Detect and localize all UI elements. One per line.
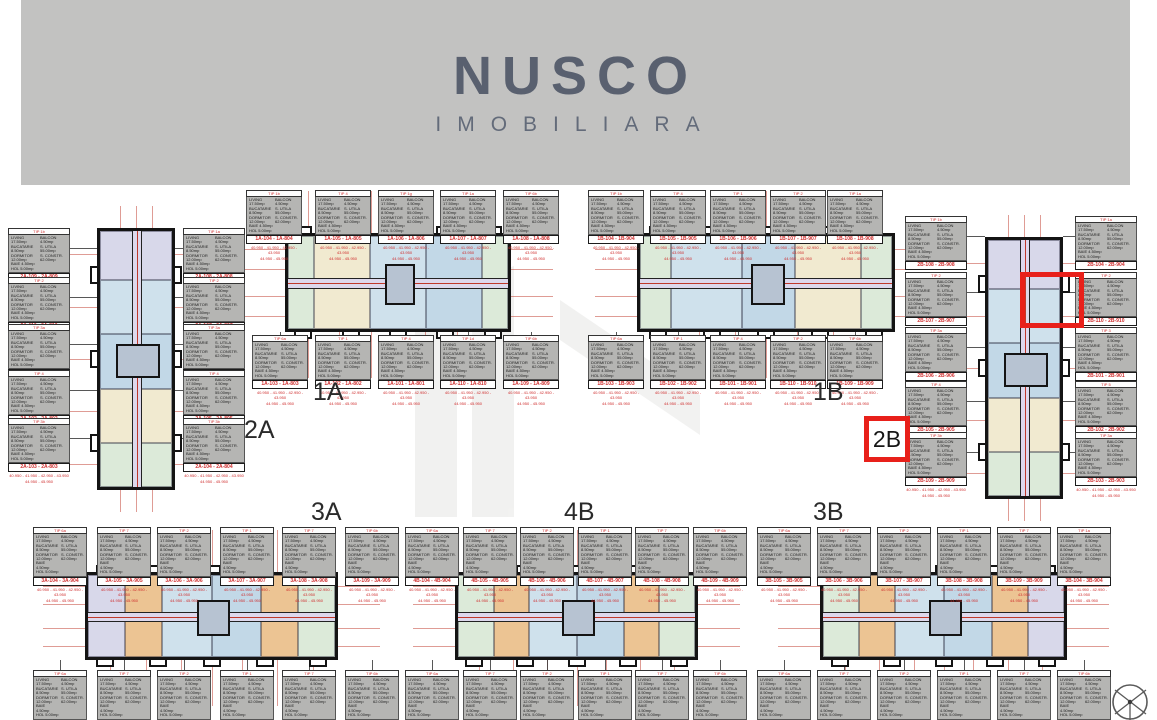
- unit-range-label[interactable]: 1B-102 - 1B-902: [650, 380, 706, 389]
- card-details: LIVING 17.50mpBUCATARIE 8.50mpDORMITOR 1…: [578, 677, 632, 720]
- card-details-left: LIVING 17.50mpBUCATARIE 8.50mpDORMITOR 1…: [523, 678, 546, 718]
- card-details: LIVING 17.50mpBUCATARIE 8.50mpDORMITOR 1…: [693, 534, 747, 577]
- unit-callout-card: TIP 1dLIVING 17.50mpBUCATARIE 8.50mpDORM…: [440, 335, 496, 406]
- balcony-bump: [1061, 443, 1070, 461]
- stair-core: [751, 264, 785, 305]
- unit-range-label[interactable]: 1B-107 - 1B-907: [770, 235, 826, 244]
- unit-range-label[interactable]: 4B-105 - 4B-905: [463, 577, 517, 586]
- card-details-left: LIVING 17.50mpBUCATARIE 8.50mpDORMITOR 1…: [249, 198, 273, 233]
- building-title-3a: 3A: [311, 498, 342, 527]
- card-details-left: LIVING 17.50mpBUCATARIE 8.50mpDORMITOR 1…: [1000, 678, 1023, 718]
- tip-label: TIP 7: [635, 670, 689, 677]
- connector-line: [1063, 401, 1075, 402]
- card-details-left: LIVING 17.50mpBUCATARIE 8.50mpDORMITOR 1…: [223, 678, 246, 718]
- unit-range-label[interactable]: 1A-101 - 1A-801: [378, 380, 434, 389]
- tip-label: TIP 1: [578, 670, 632, 677]
- card-details-right: BALCON 4.50mpS. UTILA 55.00mpS. CONSTR. …: [721, 535, 744, 575]
- card-details: LIVING 17.50mpBUCATARIE 8.50mpDORMITOR 1…: [440, 197, 496, 235]
- balcony-bump: [978, 443, 987, 461]
- card-details-right: BALCON 4.50mpS. UTILA 55.00mpS. CONSTR. …: [785, 535, 808, 575]
- card-prices: 44.950 - 45.950: [650, 256, 706, 261]
- connector-line: [70, 390, 97, 391]
- card-prices: 40.950 - 41.950 - 42.950 - 43.950: [440, 390, 496, 400]
- card-details-right: BALCON 4.50mpS. UTILA 55.00mpS. CONSTR. …: [40, 426, 67, 461]
- unit-range-label[interactable]: 1A-108 - 1A-808: [503, 235, 559, 244]
- unit-range-label[interactable]: 1A-107 - 1A-807: [440, 235, 496, 244]
- card-details: LIVING 17.50mpBUCATARIE 8.50mpDORMITOR 1…: [503, 342, 559, 380]
- card-prices: 40.950 - 41.950 - 42.950 - 43.950: [588, 245, 644, 255]
- unit-callout-card: TIP 1LIVING 17.50mpBUCATARIE 8.50mpDORMI…: [220, 527, 274, 603]
- card-details-right: BALCON 4.50mpS. UTILA 55.00mpS. CONSTR. …: [532, 198, 556, 233]
- card-details-right: BALCON 4.50mpS. UTILA 55.00mpS. CONSTR. …: [799, 198, 823, 233]
- connector-line: [70, 248, 97, 249]
- card-details-right: BALCON 4.50mpS. UTILA 55.00mpS. CONSTR. …: [215, 236, 242, 271]
- connector-line: [70, 297, 97, 298]
- card-details-left: LIVING 17.50mpBUCATARIE 8.50mpDORMITOR 1…: [1078, 335, 1105, 370]
- card-details: LIVING 17.50mpBUCATARIE 8.50mpDORMITOR 1…: [378, 342, 434, 380]
- unit-range-label[interactable]: 4B-108 - 4B-908: [635, 577, 689, 586]
- tip-label: TIP 4: [650, 190, 706, 197]
- card-details: LIVING 17.50mpBUCATARIE 8.50mpDORMITOR 1…: [1075, 334, 1137, 372]
- card-details-right: BALCON 4.50mpS. UTILA 55.00mpS. CONSTR. …: [248, 535, 271, 575]
- card-details-left: LIVING 17.50mpBUCATARIE 8.50mpDORMITOR 1…: [696, 535, 719, 575]
- card-details-left: LIVING 17.50mpBUCATARIE 8.50mpDORMITOR 1…: [36, 678, 59, 718]
- card-prices: 44.950 - 45.950: [1075, 493, 1137, 498]
- card-details-left: LIVING 17.50mpBUCATARIE 8.50mpDORMITOR 1…: [160, 678, 183, 718]
- card-details-left: LIVING 17.50mpBUCATARIE 8.50mpDORMITOR 1…: [348, 535, 371, 575]
- card-details: LIVING 17.50mpBUCATARIE 8.50mpDORMITOR 1…: [345, 677, 399, 720]
- tip-label: TIP 6b: [827, 335, 883, 342]
- card-details-left: LIVING 17.50mpBUCATARIE 8.50mpDORMITOR 1…: [830, 198, 854, 233]
- card-prices: 44.950 - 45.950: [183, 479, 245, 484]
- card-details-right: BALCON 4.50mpS. UTILA 55.00mpS. CONSTR. …: [1107, 280, 1134, 315]
- card-details-left: LIVING 17.50mpBUCATARIE 8.50mpDORMITOR 1…: [36, 535, 59, 575]
- card-details-right: BALCON 4.50mpS. UTILA 55.00mpS. CONSTR. …: [185, 535, 208, 575]
- unit-callout-card: TIP 6aLIVING 17.50mpBUCATARIE 8.50mpDORM…: [757, 527, 811, 603]
- balcony-bump: [986, 658, 1004, 667]
- card-details: LIVING 17.50mpBUCATARIE 8.50mpDORMITOR 1…: [157, 534, 211, 577]
- unit-range-label[interactable]: 3A-106 - 3A-906: [157, 577, 211, 586]
- connector-line: [70, 344, 97, 345]
- tip-label: TIP 7: [817, 670, 871, 677]
- card-details-left: LIVING 17.50mpBUCATARIE 8.50mpDORMITOR 1…: [11, 426, 38, 461]
- card-details-right: BALCON 4.50mpS. UTILA 55.00mpS. CONSTR. …: [491, 535, 514, 575]
- card-details-left: LIVING 17.50mpBUCATARIE 8.50mpDORMITOR 1…: [11, 332, 38, 367]
- card-details: LIVING 17.50mpBUCATARIE 8.50mpDORMITOR 1…: [520, 534, 574, 577]
- card-prices: 40.950 - 41.950 - 42.950 - 43.950: [693, 587, 747, 597]
- unit-range-label[interactable]: 1A-110 - 1A-810: [440, 380, 496, 389]
- tip-label: TIP 2: [877, 670, 931, 677]
- tip-label: TIP 1: [937, 527, 991, 534]
- card-details: LIVING 17.50mpBUCATARIE 8.50mpDORMITOR 1…: [877, 534, 931, 577]
- card-details-right: BALCON 4.50mpS. UTILA 55.00mpS. CONSTR. …: [606, 678, 629, 718]
- card-prices: 40.950 - 41.950 - 42.950 - 43.950: [770, 245, 826, 255]
- card-details-right: BALCON 4.50mpS. UTILA 55.00mpS. CONSTR. …: [548, 535, 571, 575]
- card-details-right: BALCON 4.50mpS. UTILA 55.00mpS. CONSTR. …: [617, 343, 641, 378]
- card-details-right: BALCON 4.50mpS. UTILA 55.00mpS. CONSTR. …: [937, 280, 964, 315]
- balcony-bump: [96, 658, 114, 667]
- tip-label: TIP 6a: [405, 527, 459, 534]
- card-details-right: BALCON 4.50mpS. UTILA 55.00mpS. CONSTR. …: [125, 535, 148, 575]
- card-prices: 44.950 - 45.950: [220, 598, 274, 603]
- unit-range-label[interactable]: 2B-110 - 2B-910: [1075, 317, 1137, 326]
- card-details: LIVING 17.50mpBUCATARIE 8.50mpDORMITOR 1…: [282, 534, 336, 577]
- unit-range-label[interactable]: 4B-104 - 4B-904: [405, 577, 459, 586]
- card-details-left: LIVING 17.50mpBUCATARIE 8.50mpDORMITOR 1…: [591, 198, 615, 233]
- unit-callout-card: TIP 1gLIVING 17.50mpBUCATARIE 8.50mpDORM…: [378, 190, 434, 261]
- card-details-left: LIVING 17.50mpBUCATARIE 8.50mpDORMITOR 1…: [506, 343, 530, 378]
- unit-range-label[interactable]: 2B-106 - 2B-906: [905, 372, 967, 381]
- unit-callout-card: TIP 6bLIVING 17.50mpBUCATARIE 8.50mpDORM…: [693, 670, 747, 720]
- unit-range-label[interactable]: 1A-103 - 1A-803: [252, 380, 308, 389]
- card-details: LIVING 17.50mpBUCATARIE 8.50mpDORMITOR 1…: [905, 223, 967, 261]
- connector-line: [175, 390, 183, 391]
- card-prices: 40.950 - 41.950 - 42.950 - 43.950: [378, 390, 434, 400]
- connector-line: [175, 248, 183, 249]
- card-details-right: BALCON 4.50mpS. UTILA 55.00mpS. CONSTR. …: [61, 678, 84, 718]
- card-details: LIVING 17.50mpBUCATARIE 8.50mpDORMITOR 1…: [183, 235, 245, 273]
- tip-label: TIP 6a: [405, 670, 459, 677]
- card-details-left: LIVING 17.50mpBUCATARIE 8.50mpDORMITOR 1…: [285, 535, 308, 575]
- card-details-right: BALCON 4.50mpS. UTILA 55.00mpS. CONSTR. …: [1107, 440, 1134, 475]
- connector-line: [175, 344, 183, 345]
- card-details: LIVING 17.50mpBUCATARIE 8.50mpDORMITOR 1…: [33, 534, 87, 577]
- balcony-bump: [1038, 658, 1056, 667]
- card-details-right: BALCON 4.50mpS. UTILA 55.00mpS. CONSTR. …: [275, 198, 299, 233]
- card-details: LIVING 17.50mpBUCATARIE 8.50mpDORMITOR 1…: [997, 534, 1051, 577]
- card-prices: 44.950 - 45.950: [157, 598, 211, 603]
- unit-callout-card: TIP 3bLIVING 17.50mpBUCATARIE 8.50mpDORM…: [8, 418, 70, 484]
- stair-core: [929, 600, 962, 637]
- card-details: LIVING 17.50mpBUCATARIE 8.50mpDORMITOR 1…: [183, 377, 245, 415]
- card-details-right: BALCON 4.50mpS. UTILA 55.00mpS. CONSTR. …: [721, 678, 744, 718]
- card-prices: 44.950 - 45.950: [827, 256, 883, 261]
- card-details-right: BALCON 4.50mpS. UTILA 55.00mpS. CONSTR. …: [215, 426, 242, 461]
- card-prices: 44.950 - 45.950: [8, 479, 70, 484]
- unit-callout-card: TIP 2LIVING 17.50mpBUCATARIE 8.50mpDORMI…: [770, 190, 826, 261]
- card-details-left: LIVING 17.50mpBUCATARIE 8.50mpDORMITOR 1…: [318, 198, 342, 233]
- card-details-right: BALCON 4.50mpS. UTILA 55.00mpS. CONSTR. …: [845, 678, 868, 718]
- card-details: LIVING 17.50mpBUCATARIE 8.50mpDORMITOR 1…: [220, 534, 274, 577]
- card-details: LIVING 17.50mpBUCATARIE 8.50mpDORMITOR 1…: [315, 197, 371, 235]
- card-details-right: BALCON 4.50mpS. UTILA 55.00mpS. CONSTR. …: [469, 198, 493, 233]
- unit-callout-card: TIP 6aLIVING 17.50mpBUCATARIE 8.50mpDORM…: [405, 527, 459, 603]
- balcony-bump: [309, 658, 327, 667]
- unit-callout-card: TIP 2LIVING 17.50mpBUCATARIE 8.50mpDORMI…: [877, 670, 931, 720]
- card-details-right: BALCON 4.50mpS. UTILA 55.00mpS. CONSTR. …: [965, 535, 988, 575]
- card-prices: 44.950 - 45.950: [503, 401, 559, 406]
- connector-line: [547, 660, 548, 670]
- card-details: LIVING 17.50mpBUCATARIE 8.50mpDORMITOR 1…: [578, 534, 632, 577]
- card-details-left: LIVING 17.50mpBUCATARIE 8.50mpDORMITOR 1…: [880, 678, 903, 718]
- unit-range-label[interactable]: 2B-109 - 2B-909: [905, 477, 967, 486]
- card-details-left: LIVING 17.50mpBUCATARIE 8.50mpDORMITOR 1…: [1060, 678, 1083, 718]
- unit-range-label[interactable]: 3A-109 - 3A-909: [345, 577, 399, 586]
- unit-callout-card: TIP 6aLIVING 17.50mpBUCATARIE 8.50mpDORM…: [33, 670, 87, 720]
- card-details-left: LIVING 17.50mpBUCATARIE 8.50mpDORMITOR 1…: [713, 343, 737, 378]
- card-prices: 44.950 - 45.950: [693, 598, 747, 603]
- card-details-right: BALCON 4.50mpS. UTILA 55.00mpS. CONSTR. …: [856, 343, 880, 378]
- card-details-right: BALCON 4.50mpS. UTILA 55.00mpS. CONSTR. …: [491, 678, 514, 718]
- card-details-left: LIVING 17.50mpBUCATARIE 8.50mpDORMITOR 1…: [506, 198, 530, 233]
- unit-callout-card: TIP 7LIVING 17.50mpBUCATARIE 8.50mpDORMI…: [817, 527, 871, 603]
- tip-label: TIP 3a: [1075, 432, 1137, 439]
- unit-callout-card: TIP 1bLIVING 17.50mpBUCATARIE 8.50mpDORM…: [588, 190, 644, 261]
- unit-callout-card: TIP 7LIVING 17.50mpBUCATARIE 8.50mpDORMI…: [997, 670, 1051, 720]
- tip-label: TIP 7: [282, 670, 336, 677]
- card-prices: 40.950 - 41.950 - 42.950 - 43.950: [710, 390, 766, 400]
- card-details: LIVING 17.50mpBUCATARIE 8.50mpDORMITOR 1…: [463, 677, 517, 720]
- unit-callout-card: TIP 7LIVING 17.50mpBUCATARIE 8.50mpDORMI…: [97, 670, 151, 720]
- unit-range-label[interactable]: 4B-107 - 4B-907: [578, 577, 632, 586]
- card-details: LIVING 17.50mpBUCATARIE 8.50mpDORMITOR 1…: [8, 377, 70, 415]
- tip-label: TIP 1g: [378, 190, 434, 197]
- unit-callout-card: TIP 6aLIVING 17.50mpBUCATARIE 8.50mpDORM…: [405, 670, 459, 720]
- card-details: LIVING 17.50mpBUCATARIE 8.50mpDORMITOR 1…: [8, 235, 70, 273]
- card-details-left: LIVING 17.50mpBUCATARIE 8.50mpDORMITOR 1…: [186, 378, 213, 413]
- card-details-right: BALCON 4.50mpS. UTILA 55.00mpS. CONSTR. …: [248, 678, 271, 718]
- unit-range-label[interactable]: 3B-109 - 3B-909: [997, 577, 1051, 586]
- unit-range-label[interactable]: 1A-104 - 1A-804: [246, 235, 302, 244]
- connector-line: [247, 660, 248, 670]
- unit-range-label[interactable]: 4B-106 - 4B-906: [520, 577, 574, 586]
- connector-line: [662, 660, 663, 670]
- card-prices: 44.950 - 45.950: [997, 598, 1051, 603]
- stair-core: [116, 344, 160, 379]
- card-details-right: BALCON 4.50mpS. UTILA 55.00mpS. CONSTR. …: [344, 343, 368, 378]
- building-label-2b[interactable]: 2B: [864, 416, 910, 462]
- card-details-left: LIVING 17.50mpBUCATARIE 8.50mpDORMITOR 1…: [773, 343, 797, 378]
- unit-callout-card: TIP 2LIVING 17.50mpBUCATARIE 8.50mpDORMI…: [877, 527, 931, 603]
- card-details-right: BALCON 4.50mpS. UTILA 55.00mpS. CONSTR. …: [663, 535, 686, 575]
- unit-range-label[interactable]: 1A-109 - 1A-809: [503, 380, 559, 389]
- unit-range-label[interactable]: 1B-106 - 1B-906: [710, 235, 766, 244]
- card-details-right: BALCON 4.50mpS. UTILA 55.00mpS. CONSTR. …: [905, 535, 928, 575]
- card-details-left: LIVING 17.50mpBUCATARIE 8.50mpDORMITOR 1…: [443, 198, 467, 233]
- card-details: LIVING 17.50mpBUCATARIE 8.50mpDORMITOR 1…: [1075, 279, 1137, 317]
- unit-range-label[interactable]: 3B-107 - 3B-907: [877, 577, 931, 586]
- tip-label: TIP 6b: [345, 527, 399, 534]
- unit-range-label[interactable]: 3A-105 - 3A-905: [97, 577, 151, 586]
- tip-label: TIP 7: [97, 527, 151, 534]
- unit-range-label[interactable]: 2B-108 - 2B-908: [905, 261, 967, 270]
- card-details-right: BALCON 4.50mpS. UTILA 55.00mpS. CONSTR. …: [937, 389, 964, 424]
- tip-label: TIP 1a: [183, 228, 245, 235]
- unit-range-label[interactable]: 2B-101 - 2B-901: [1075, 372, 1137, 381]
- card-details-right: BALCON 4.50mpS. UTILA 55.00mpS. CONSTR. …: [532, 343, 556, 378]
- card-details: LIVING 17.50mpBUCATARIE 8.50mpDORMITOR 1…: [315, 342, 371, 380]
- card-details-right: BALCON 4.50mpS. UTILA 55.00mpS. CONSTR. …: [606, 535, 629, 575]
- card-prices: 44.950 - 45.950: [817, 598, 871, 603]
- unit-range-label[interactable]: 1B-101 - 1B-901: [710, 380, 766, 389]
- card-prices: 44.950 - 45.950: [937, 598, 991, 603]
- card-details-left: LIVING 17.50mpBUCATARIE 8.50mpDORMITOR 1…: [581, 678, 604, 718]
- unit-range-label[interactable]: 3A-104 - 3A-904: [33, 577, 87, 586]
- balcony-bump: [1061, 359, 1070, 377]
- unit-range-label[interactable]: 2B-107 - 2B-907: [905, 317, 967, 326]
- tip-label: TIP 7: [282, 527, 336, 534]
- card-details: LIVING 17.50mpBUCATARIE 8.50mpDORMITOR 1…: [1075, 388, 1137, 426]
- unit-range-label[interactable]: 4B-109 - 4B-909: [693, 577, 747, 586]
- unit-range-label[interactable]: 3A-107 - 3A-907: [220, 577, 274, 586]
- unit-range-label[interactable]: 1A-106 - 1A-806: [378, 235, 434, 244]
- tip-label: TIP 6a: [588, 335, 644, 342]
- unit-range-label[interactable]: 3A-108 - 3A-908: [282, 577, 336, 586]
- card-details-right: BALCON 4.50mpS. UTILA 55.00mpS. CONSTR. …: [344, 198, 368, 233]
- unit-range-label[interactable]: 2B-103 - 2B-903: [1075, 477, 1137, 486]
- unit-callout-card: TIP 6bLIVING 17.50mpBUCATARIE 8.50mpDORM…: [693, 527, 747, 603]
- card-prices: 44.950 - 45.950: [877, 598, 931, 603]
- unit-range-label[interactable]: 1B-104 - 1B-904: [588, 235, 644, 244]
- card-prices: 44.950 - 45.950: [905, 493, 967, 498]
- card-details-right: BALCON 4.50mpS. UTILA 55.00mpS. CONSTR. …: [845, 535, 868, 575]
- unit-range-label[interactable]: 3B-106 - 3B-906: [817, 577, 871, 586]
- card-details-left: LIVING 17.50mpBUCATARIE 8.50mpDORMITOR 1…: [11, 378, 38, 413]
- card-details: LIVING 17.50mpBUCATARIE 8.50mpDORMITOR 1…: [770, 197, 826, 235]
- unit-callout-card: TIP 7LIVING 17.50mpBUCATARIE 8.50mpDORMI…: [463, 527, 517, 603]
- card-details-left: LIVING 17.50mpBUCATARIE 8.50mpDORMITOR 1…: [653, 343, 677, 378]
- balcony-bump: [883, 658, 901, 667]
- connector-line: [490, 660, 491, 670]
- card-details-right: BALCON 4.50mpS. UTILA 55.00mpS. CONSTR. …: [40, 236, 67, 271]
- card-details: LIVING 17.50mpBUCATARIE 8.50mpDORMITOR 1…: [8, 331, 70, 369]
- card-details-left: LIVING 17.50mpBUCATARIE 8.50mpDORMITOR 1…: [908, 224, 935, 259]
- balcony-bump: [670, 658, 688, 667]
- tip-label: TIP 1: [220, 670, 274, 677]
- card-details: LIVING 17.50mpBUCATARIE 8.50mpDORMITOR 1…: [97, 534, 151, 577]
- card-details-right: BALCON 4.50mpS. UTILA 55.00mpS. CONSTR. …: [407, 198, 431, 233]
- unit-callout-card: TIP 6aLIVING 17.50mpBUCATARIE 8.50mpDORM…: [588, 335, 644, 406]
- card-details-right: BALCON 4.50mpS. UTILA 55.00mpS. CONSTR. …: [1107, 389, 1134, 424]
- card-prices: 40.950 - 41.950 - 42.950 - 43.950: [405, 587, 459, 597]
- unit-callout-card: TIP 2LIVING 17.50mpBUCATARIE 8.50mpDORMI…: [520, 670, 574, 720]
- unit-range-label[interactable]: 1B-105 - 1B-905: [650, 235, 706, 244]
- card-details: LIVING 17.50mpBUCATARIE 8.50mpDORMITOR 1…: [757, 677, 811, 720]
- balcony-bump: [90, 350, 99, 368]
- card-details-right: BALCON 4.50mpS. UTILA 55.00mpS. CONSTR. …: [937, 335, 964, 370]
- unit-callout-card: TIP 1LIVING 17.50mpBUCATARIE 8.50mpDORMI…: [710, 190, 766, 261]
- card-details-left: LIVING 17.50mpBUCATARIE 8.50mpDORMITOR 1…: [940, 678, 963, 718]
- tip-label: TIP 2: [520, 670, 574, 677]
- building-title-1a: 1A: [313, 378, 344, 407]
- tip-label: TIP 6b: [693, 670, 747, 677]
- card-details-left: LIVING 17.50mpBUCATARIE 8.50mpDORMITOR 1…: [760, 535, 783, 575]
- unit-range-label[interactable]: 3B-108 - 3B-908: [937, 577, 991, 586]
- tip-label: TIP 1a: [1075, 216, 1137, 223]
- card-prices: 40.950 - 41.950 - 42.950 - 43.950: [157, 587, 211, 597]
- card-details-left: LIVING 17.50mpBUCATARIE 8.50mpDORMITOR 1…: [11, 236, 38, 271]
- tip-label: TIP 1: [315, 335, 371, 342]
- card-details: LIVING 17.50mpBUCATARIE 8.50mpDORMITOR 1…: [817, 677, 871, 720]
- card-details-left: LIVING 17.50mpBUCATARIE 8.50mpDORMITOR 1…: [696, 678, 719, 718]
- unit-range-label[interactable]: 3B-104 - 3B-904: [1057, 577, 1111, 586]
- tip-label: TIP 7: [463, 670, 517, 677]
- card-details-right: BALCON 4.50mpS. UTILA 55.00mpS. CONSTR. …: [965, 678, 988, 718]
- card-details-left: LIVING 17.50mpBUCATARIE 8.50mpDORMITOR 1…: [466, 535, 489, 575]
- unit-callout-card: TIP 6bLIVING 17.50mpBUCATARIE 8.50mpDORM…: [503, 190, 559, 261]
- unit-callout-card: TIP 1LIVING 17.50mpBUCATARIE 8.50mpDORMI…: [578, 670, 632, 720]
- card-prices: 44.950 - 45.950: [757, 598, 811, 603]
- unit-callout-card: TIP 1aLIVING 17.50mpBUCATARIE 8.50mpDORM…: [440, 190, 496, 261]
- connector-line: [720, 660, 721, 670]
- connector-line: [432, 660, 433, 670]
- connector-line: [1063, 347, 1075, 348]
- card-prices: 40.950 - 41.950 - 42.950 - 43.950: [463, 587, 517, 597]
- card-prices: 40.950 - 41.950 - 42.950 - 43.950: [1075, 487, 1137, 492]
- unit-callout-card: TIP 1LIVING 17.50mpBUCATARIE 8.50mpDORMI…: [937, 527, 991, 603]
- card-prices: 40.950 - 41.950 - 42.950 - 43.950: [710, 245, 766, 255]
- balcony-bump: [173, 350, 182, 368]
- card-details-right: BALCON 4.50mpS. UTILA 55.00mpS. CONSTR. …: [373, 678, 396, 718]
- unit-range-label[interactable]: 2A-103 - 2A-803: [8, 463, 70, 472]
- unit-range-label[interactable]: 1B-103 - 1B-903: [588, 380, 644, 389]
- tip-label: TIP 6a: [252, 335, 308, 342]
- card-details: LIVING 17.50mpBUCATARIE 8.50mpDORMITOR 1…: [282, 677, 336, 720]
- card-details-right: BALCON 4.50mpS. UTILA 55.00mpS. CONSTR. …: [663, 678, 686, 718]
- card-details: LIVING 17.50mpBUCATARIE 8.50mpDORMITOR 1…: [635, 677, 689, 720]
- card-prices: 40.950 - 41.950 - 42.950 - 43.950: [440, 245, 496, 255]
- card-details: LIVING 17.50mpBUCATARIE 8.50mpDORMITOR 1…: [405, 677, 459, 720]
- tip-label: TIP 2: [8, 277, 70, 284]
- highlight-box-unit-2b-110[interactable]: [1020, 272, 1084, 328]
- card-prices: 44.950 - 45.950: [282, 598, 336, 603]
- unit-callout-card: TIP 6bLIVING 17.50mpBUCATARIE 8.50mpDORM…: [1057, 670, 1111, 720]
- balcony-bump: [619, 658, 637, 667]
- card-prices: 40.950 - 41.950 - 42.950 - 43.950: [905, 487, 967, 492]
- card-prices: 44.950 - 45.950: [520, 598, 574, 603]
- card-details-right: BALCON 4.50mpS. UTILA 55.00mpS. CONSTR. …: [679, 198, 703, 233]
- unit-callout-card: TIP 1LIVING 17.50mpBUCATARIE 8.50mpDORMI…: [650, 335, 706, 406]
- card-details-left: LIVING 17.50mpBUCATARIE 8.50mpDORMITOR 1…: [381, 343, 405, 378]
- card-prices: 40.950 - 41.950 - 42.950 - 43.950: [8, 473, 70, 478]
- balcony-bump: [173, 266, 182, 284]
- site-plan-page: NUSCO IMOBILIARA TIP 1bLIVING 17.50mpBUC…: [0, 0, 1157, 720]
- card-details-left: LIVING 17.50mpBUCATARIE 8.50mpDORMITOR 1…: [11, 285, 38, 320]
- unit-range-label[interactable]: 2B-104 - 2B-904: [1075, 261, 1137, 270]
- unit-range-label[interactable]: 1B-108 - 1B-908: [827, 235, 883, 244]
- card-prices: 40.950 - 41.950 - 42.950 - 43.950: [827, 245, 883, 255]
- card-details-right: BALCON 4.50mpS. UTILA 55.00mpS. CONSTR. …: [1085, 535, 1108, 575]
- tip-label: TIP 6a: [33, 670, 87, 677]
- tip-label: TIP 6b: [693, 527, 747, 534]
- tip-label: TIP 1: [650, 335, 706, 342]
- card-details-left: LIVING 17.50mpBUCATARIE 8.50mpDORMITOR 1…: [186, 236, 213, 271]
- unit-range-label[interactable]: 2A-104 - 2A-804: [183, 463, 245, 472]
- tip-label: TIP 6b: [503, 335, 559, 342]
- card-details: LIVING 17.50mpBUCATARIE 8.50mpDORMITOR 1…: [220, 677, 274, 720]
- unit-callout-card: TIP 4LIVING 17.50mpBUCATARIE 8.50mpDORMI…: [710, 335, 766, 406]
- card-details: LIVING 17.50mpBUCATARIE 8.50mpDORMITOR 1…: [8, 284, 70, 322]
- unit-range-label[interactable]: 1A-105 - 1A-805: [315, 235, 371, 244]
- card-details: LIVING 17.50mpBUCATARIE 8.50mpDORMITOR 1…: [635, 534, 689, 577]
- card-prices: 40.950 - 41.950 - 42.950 - 43.950: [282, 587, 336, 597]
- card-prices: 44.950 - 45.950: [503, 256, 559, 261]
- card-details-left: LIVING 17.50mpBUCATARIE 8.50mpDORMITOR 1…: [466, 678, 489, 718]
- card-details-right: BALCON 4.50mpS. UTILA 55.00mpS. CONSTR. …: [1107, 335, 1134, 370]
- unit-callout-card: TIP 6bLIVING 17.50mpBUCATARIE 8.50mpDORM…: [503, 335, 559, 406]
- card-prices: 40.950 - 41.950 - 42.950 - 43.950: [33, 587, 87, 597]
- card-details-left: LIVING 17.50mpBUCATARIE 8.50mpDORMITOR 1…: [408, 535, 431, 575]
- card-details: LIVING 17.50mpBUCATARIE 8.50mpDORMITOR 1…: [905, 334, 967, 372]
- unit-range-label[interactable]: 3B-105 - 3B-905: [757, 577, 811, 586]
- balcony-bump: [173, 434, 182, 452]
- card-details-right: BALCON 4.50mpS. UTILA 55.00mpS. CONSTR. …: [215, 285, 242, 320]
- card-details-left: LIVING 17.50mpBUCATARIE 8.50mpDORMITOR 1…: [940, 535, 963, 575]
- card-prices: 44.950 - 45.950: [315, 256, 371, 261]
- unit-callout-card: TIP 3aLIVING 17.50mpBUCATARIE 8.50mpDORM…: [1075, 432, 1137, 498]
- unit-callout-card: TIP 7LIVING 17.50mpBUCATARIE 8.50mpDORMI…: [282, 527, 336, 603]
- card-details-left: LIVING 17.50mpBUCATARIE 8.50mpDORMITOR 1…: [100, 535, 123, 575]
